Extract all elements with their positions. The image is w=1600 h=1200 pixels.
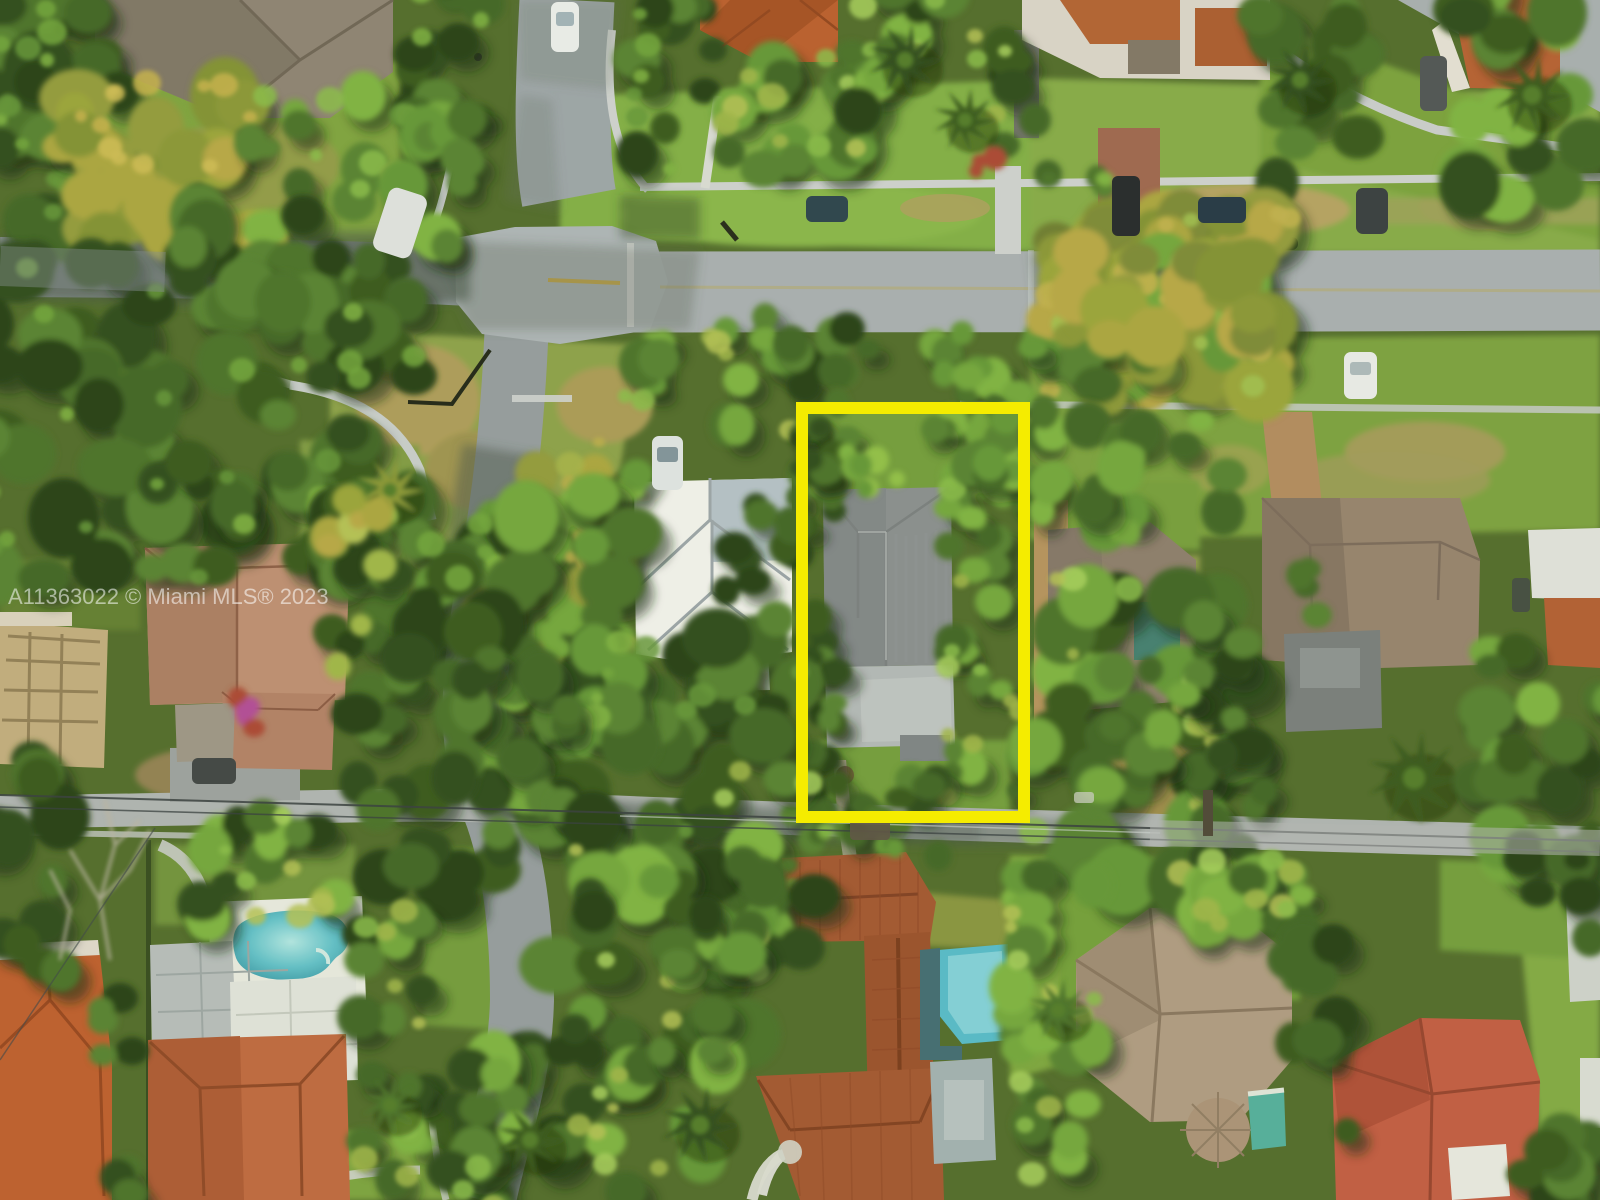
svg-text:A11363022 © Miami MLS® 2023: A11363022 © Miami MLS® 2023 [8, 584, 329, 609]
